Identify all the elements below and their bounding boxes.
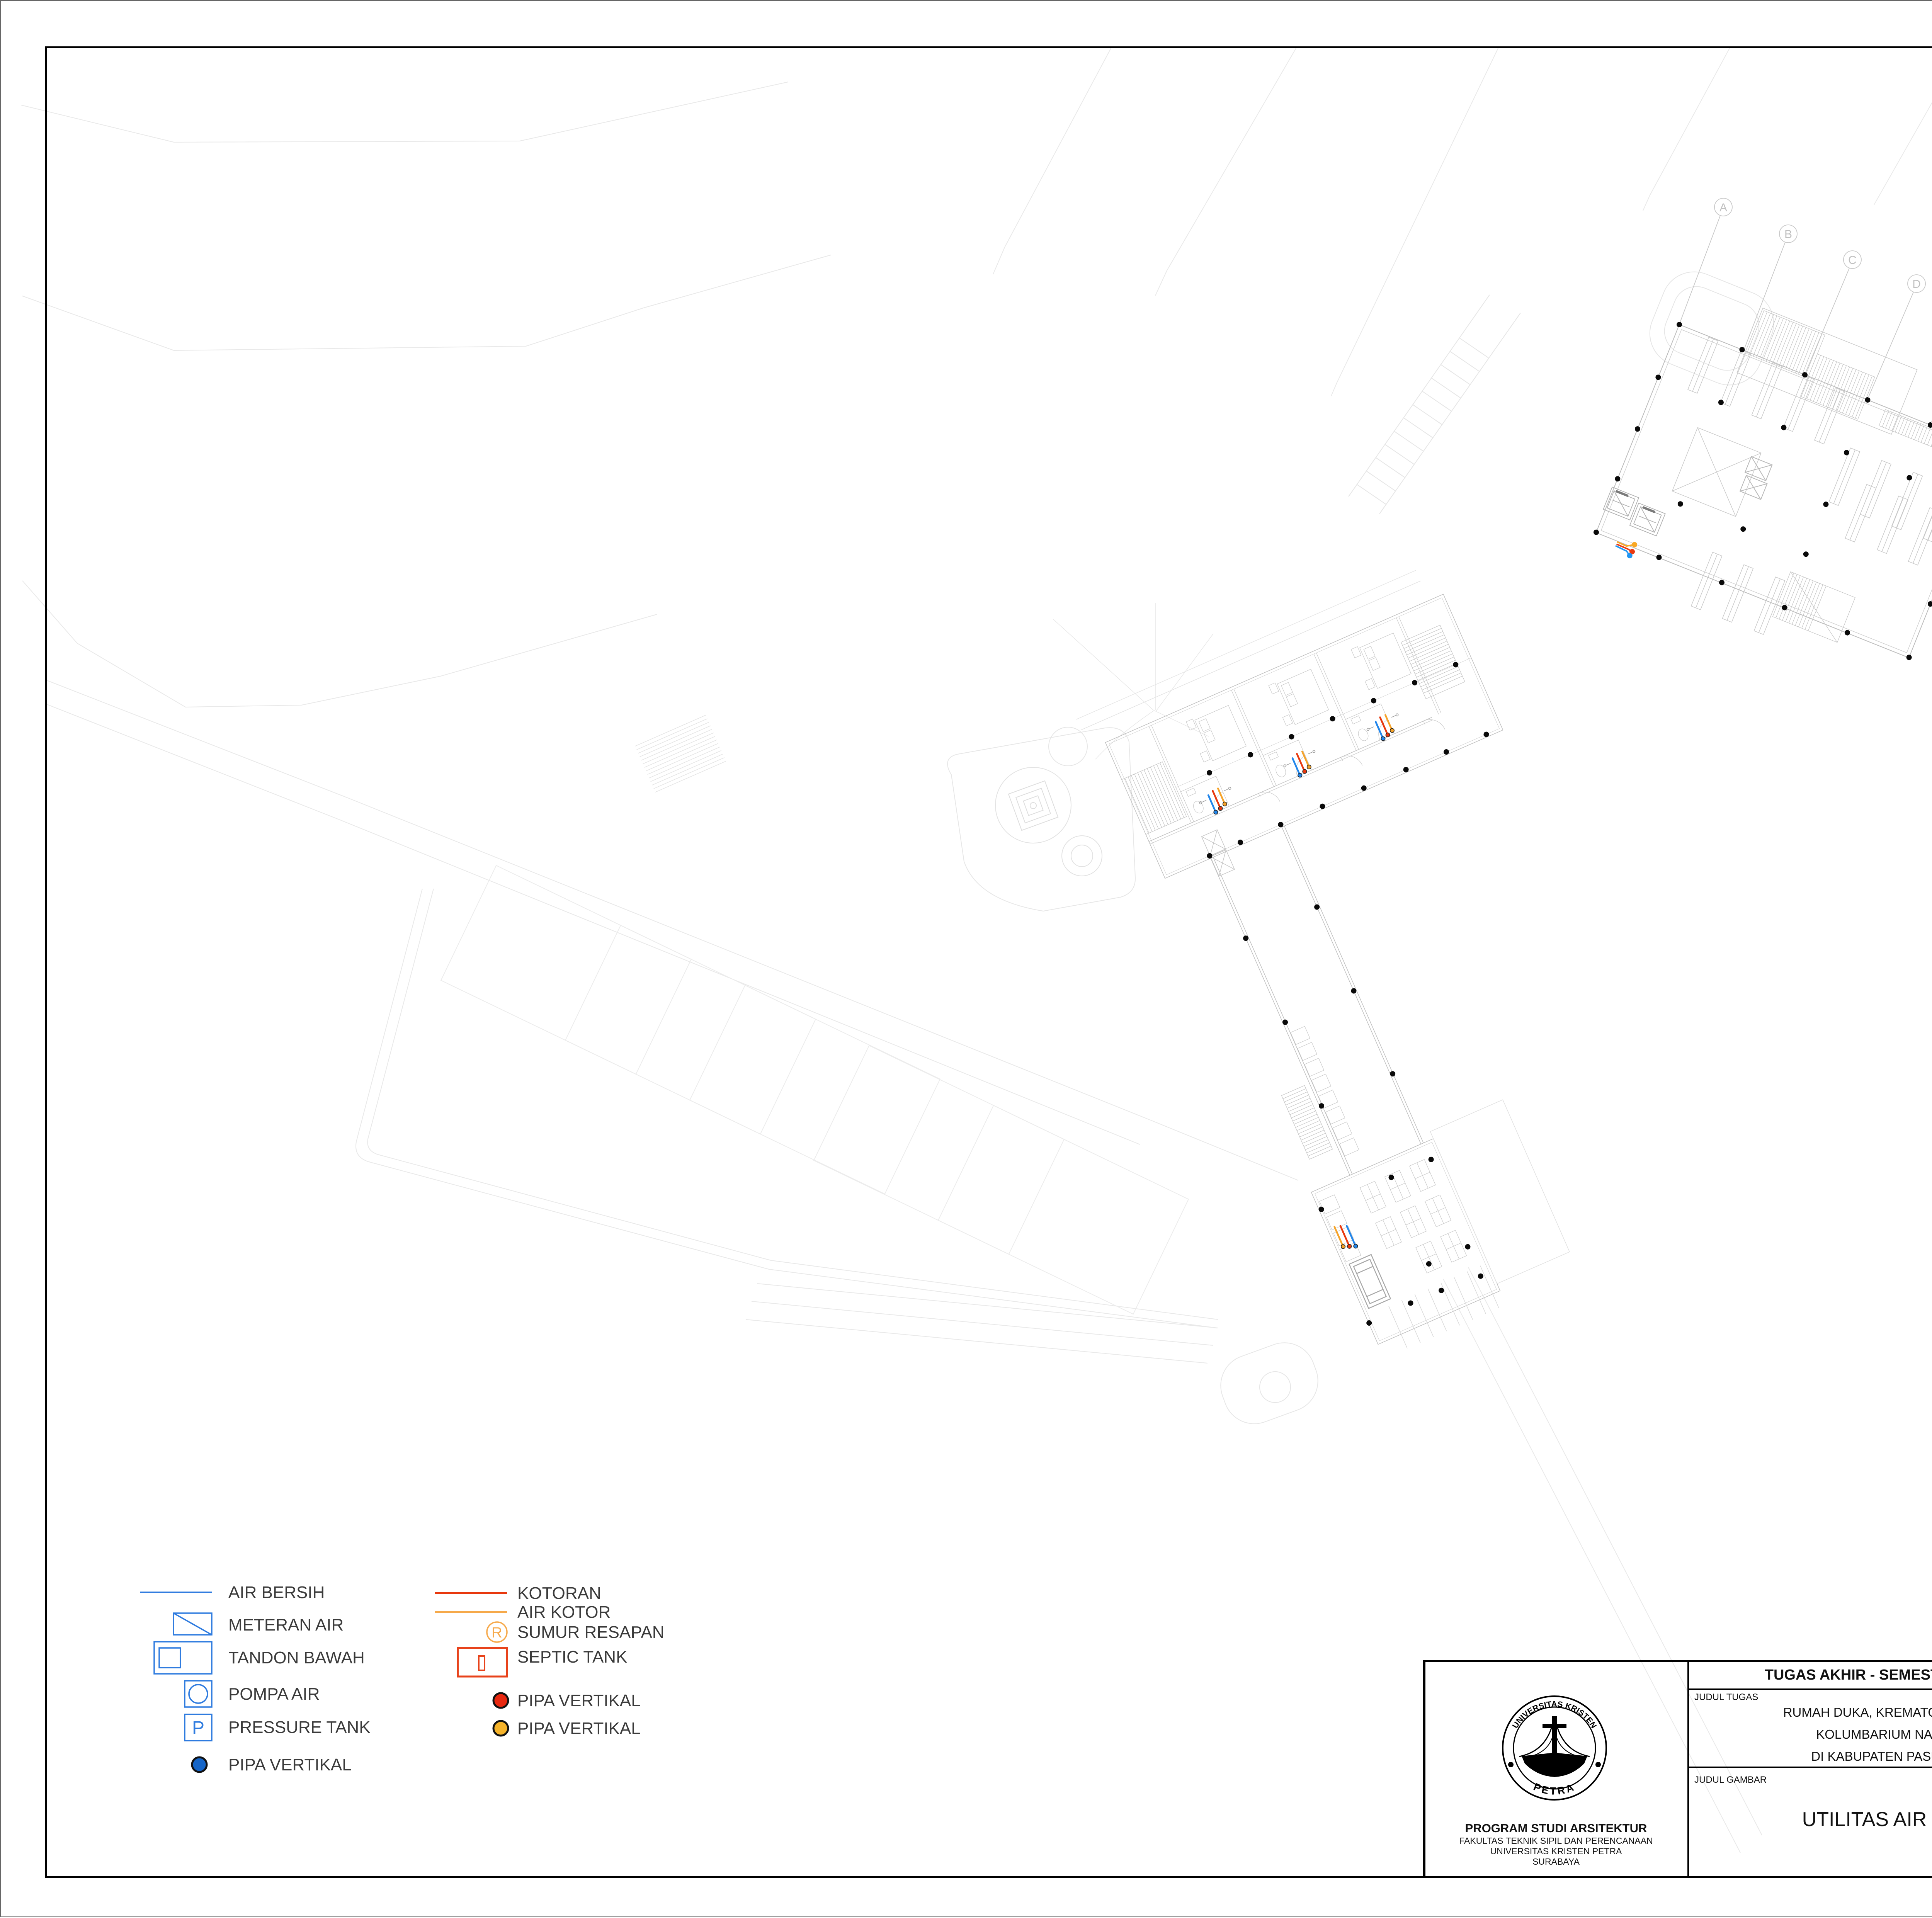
svg-text:UTILITAS AIR: UTILITAS AIR (1802, 1808, 1927, 1831)
svg-text:PIPA VERTIKAL: PIPA VERTIKAL (517, 1691, 641, 1710)
svg-text:PIPA VERTIKAL: PIPA VERTIKAL (228, 1755, 352, 1774)
svg-text:AIR KOTOR: AIR KOTOR (517, 1603, 611, 1622)
svg-text:JUDUL GAMBAR: JUDUL GAMBAR (1694, 1775, 1767, 1785)
svg-text:METERAN AIR: METERAN AIR (228, 1615, 344, 1634)
svg-text:PROGRAM STUDI ARSITEKTUR: PROGRAM STUDI ARSITEKTUR (1465, 1821, 1647, 1835)
svg-text:POMPA AIR: POMPA AIR (228, 1685, 320, 1704)
svg-text:UNIVERSITAS KRISTEN PETRA: UNIVERSITAS KRISTEN PETRA (1490, 1846, 1622, 1856)
svg-text:AIR BERSIH: AIR BERSIH (228, 1583, 325, 1602)
svg-text:SUMUR RESAPAN: SUMUR RESAPAN (517, 1623, 665, 1642)
svg-text:JUDUL TUGAS: JUDUL TUGAS (1694, 1692, 1758, 1702)
svg-text:TANDON BAWAH: TANDON BAWAH (228, 1648, 365, 1667)
svg-text:A: A (1719, 201, 1727, 214)
svg-text:KOTORAN: KOTORAN (517, 1584, 601, 1603)
svg-text:P: P (192, 1718, 204, 1738)
svg-text:R: R (492, 1625, 502, 1641)
svg-text:RUMAH DUKA, KREMATORIUM, DAN: RUMAH DUKA, KREMATORIUM, DAN (1783, 1705, 1932, 1719)
svg-text:D: D (1912, 278, 1921, 291)
svg-text:SURABAYA: SURABAYA (1532, 1857, 1580, 1867)
svg-text:DI KABUPATEN PASURUAN: DI KABUPATEN PASURUAN (1811, 1749, 1932, 1763)
svg-text:PRESSURE TANK: PRESSURE TANK (228, 1718, 371, 1737)
svg-text:TUGAS AKHIR - SEMESTER GENAP 2: TUGAS AKHIR - SEMESTER GENAP 2023/2024 (1765, 1667, 1932, 1683)
svg-text:SEPTIC TANK: SEPTIC TANK (517, 1648, 627, 1666)
svg-text:B: B (1784, 228, 1792, 241)
svg-text:FAKULTAS TEKNIK SIPIL DAN PERE: FAKULTAS TEKNIK SIPIL DAN PERENCANAAN (1459, 1836, 1653, 1846)
svg-text:PIPA VERTIKAL: PIPA VERTIKAL (517, 1719, 641, 1738)
svg-text:KOLUMBARIUM NASRANI: KOLUMBARIUM NASRANI (1816, 1727, 1932, 1741)
svg-text:C: C (1848, 254, 1857, 267)
